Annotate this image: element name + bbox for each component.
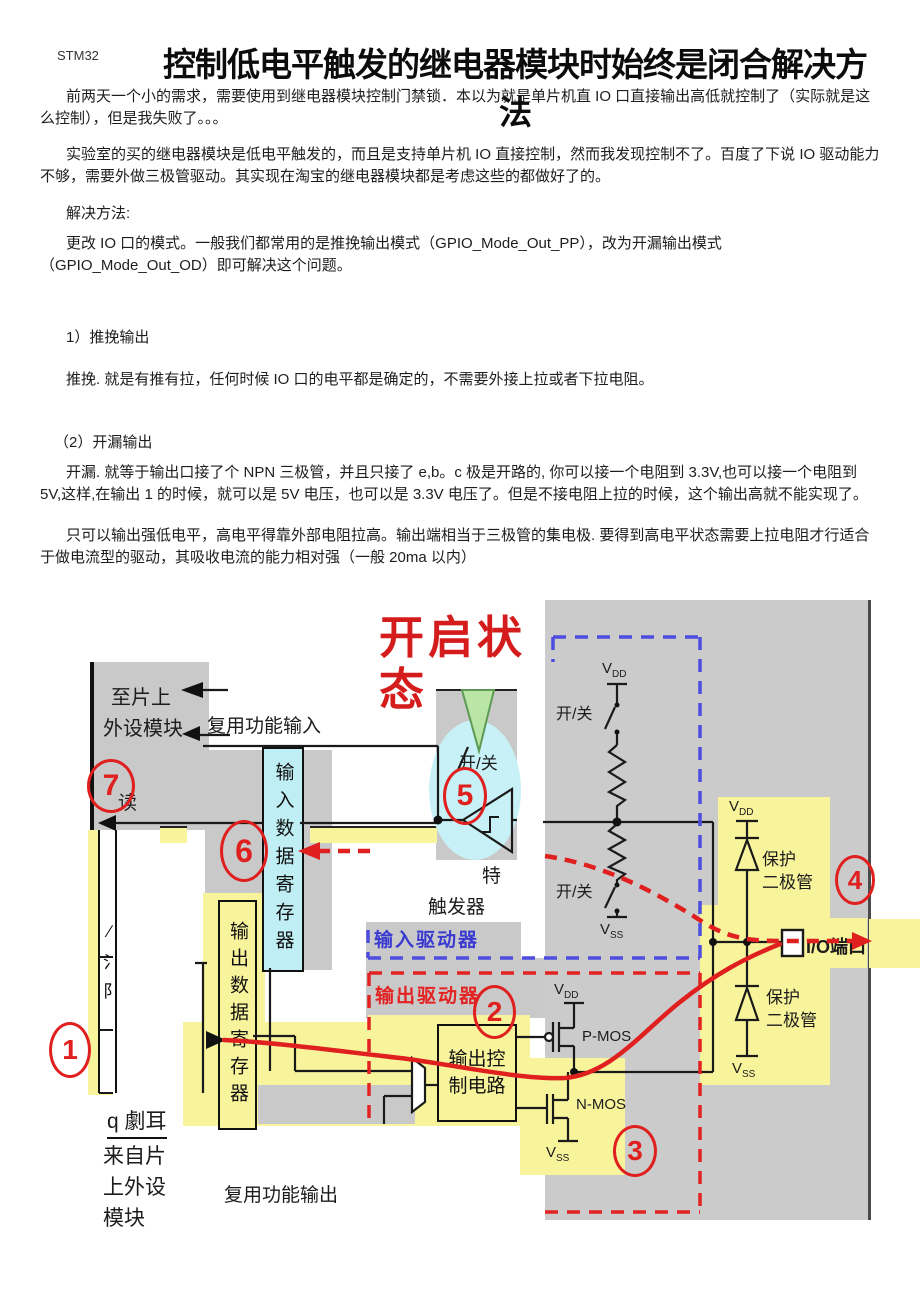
- input-driver-label: 输入驱动器: [374, 925, 479, 952]
- output-control-box: 输出控 制电路: [437, 1024, 517, 1122]
- paragraph-opendrain-heading: （2）开漏输出: [40, 432, 882, 454]
- open-state-annotation: 开启状态: [379, 612, 531, 716]
- paragraph-solution-heading: 解决方法:: [40, 203, 882, 225]
- to-peripherals-line2: 外设模块: [103, 712, 183, 741]
- vss-label-nmos: VSS: [546, 1144, 569, 1164]
- paragraph-6: 推挽. 就是有推有拉，任何时候 IO 口的电平都是确定的，不需要外接上拉或者下拉…: [40, 369, 882, 391]
- annotation-circle-5: 5: [443, 767, 487, 825]
- paragraph-9: 只可以输出强低电平，高电平得靠外部电阻拉高。输出端相当于三极管的集电极. 要得到…: [40, 525, 882, 569]
- glitch-column-chars: ∕氵阝: [97, 922, 122, 1011]
- annotation-circle-2: 2: [473, 985, 516, 1039]
- paragraph-pushpull-heading: 1）推挽输出: [40, 327, 882, 349]
- output-control-line2: 制电路: [439, 1073, 515, 1100]
- vss-label-pulldown: VSS: [600, 921, 623, 941]
- to-peripherals-line1: 至片上: [111, 681, 171, 710]
- vdd-label-pmos: VDD: [554, 981, 578, 1001]
- on-off-pulldown-label: 开/关: [556, 878, 592, 902]
- output-driver-label: 输出驱动器: [375, 981, 480, 1008]
- output-data-register-label: 输出数据寄存器: [224, 921, 251, 1110]
- paragraph-1: 前两天一个小的需求，需要使用到继电器模块控制门禁锁．本以为就是单片机直 IO 口…: [40, 86, 882, 130]
- glitch-caption: q 劇耳: [107, 1105, 167, 1139]
- mux-gray-box: [258, 1085, 415, 1124]
- yellow-nmos-area: [520, 1058, 625, 1175]
- output-data-register-box: 输出数据寄存器: [218, 900, 257, 1130]
- vdd-label-diode: VDD: [729, 798, 753, 818]
- yellow-band-small-left: [160, 826, 187, 843]
- annotation-circle-3: 3: [613, 1125, 657, 1177]
- annotation-circle-7: 7: [87, 759, 135, 813]
- pmos-label: P-MOS: [582, 1028, 631, 1045]
- annotation-circle-6: 6: [220, 820, 268, 882]
- on-off-pullup-label: 开/关: [556, 700, 592, 724]
- paragraph-2: 实验室的买的继电器模块是低电平触发的，而且是支持单片机 IO 直接控制，然而我发…: [40, 144, 882, 188]
- alt-func-output-label: 复用功能输出: [224, 1180, 338, 1207]
- input-data-register-label: 输入数据寄存器: [270, 762, 297, 958]
- input-data-register-box: 输入数据寄存器: [262, 747, 304, 972]
- paragraph-8: 开漏. 就等于输出口接了个 NPN 三极管，并且只接了 e,b。c 极是开路的,…: [40, 462, 882, 506]
- protection-diode-lower-label: 保护二极管: [766, 986, 817, 1032]
- alt-func-input-label: 复用功能输入: [207, 711, 321, 738]
- output-control-line1: 输出控: [439, 1046, 515, 1073]
- nmos-label: N-MOS: [576, 1096, 626, 1113]
- protection-diode-upper-label: 保护二极管: [762, 848, 813, 894]
- annotation-circle-4: 4: [835, 855, 875, 905]
- yellow-io-band-edge: [869, 919, 920, 968]
- vss-label-diode: VSS: [732, 1060, 755, 1080]
- schmitt-partial-label: 特: [482, 861, 501, 888]
- from-peripherals-label: 来自片上外设模块: [103, 1141, 175, 1234]
- trigger-label: 触发器: [428, 892, 485, 919]
- article-page: STM32 控制低电平触发的继电器模块时始终是闭合解决方法 前两天一个小的需求，…: [0, 0, 920, 1302]
- yellow-band-small-right: [310, 826, 437, 843]
- annotation-circle-1: 1: [49, 1022, 91, 1078]
- io-port-label: I/O端口: [806, 933, 866, 959]
- paragraph-4: 更改 IO 口的模式。一般我们都常用的是推挽输出模式（GPIO_Mode_Out…: [40, 233, 882, 277]
- vdd-label-pullup: VDD: [602, 660, 626, 680]
- brand-label: STM32: [57, 48, 99, 63]
